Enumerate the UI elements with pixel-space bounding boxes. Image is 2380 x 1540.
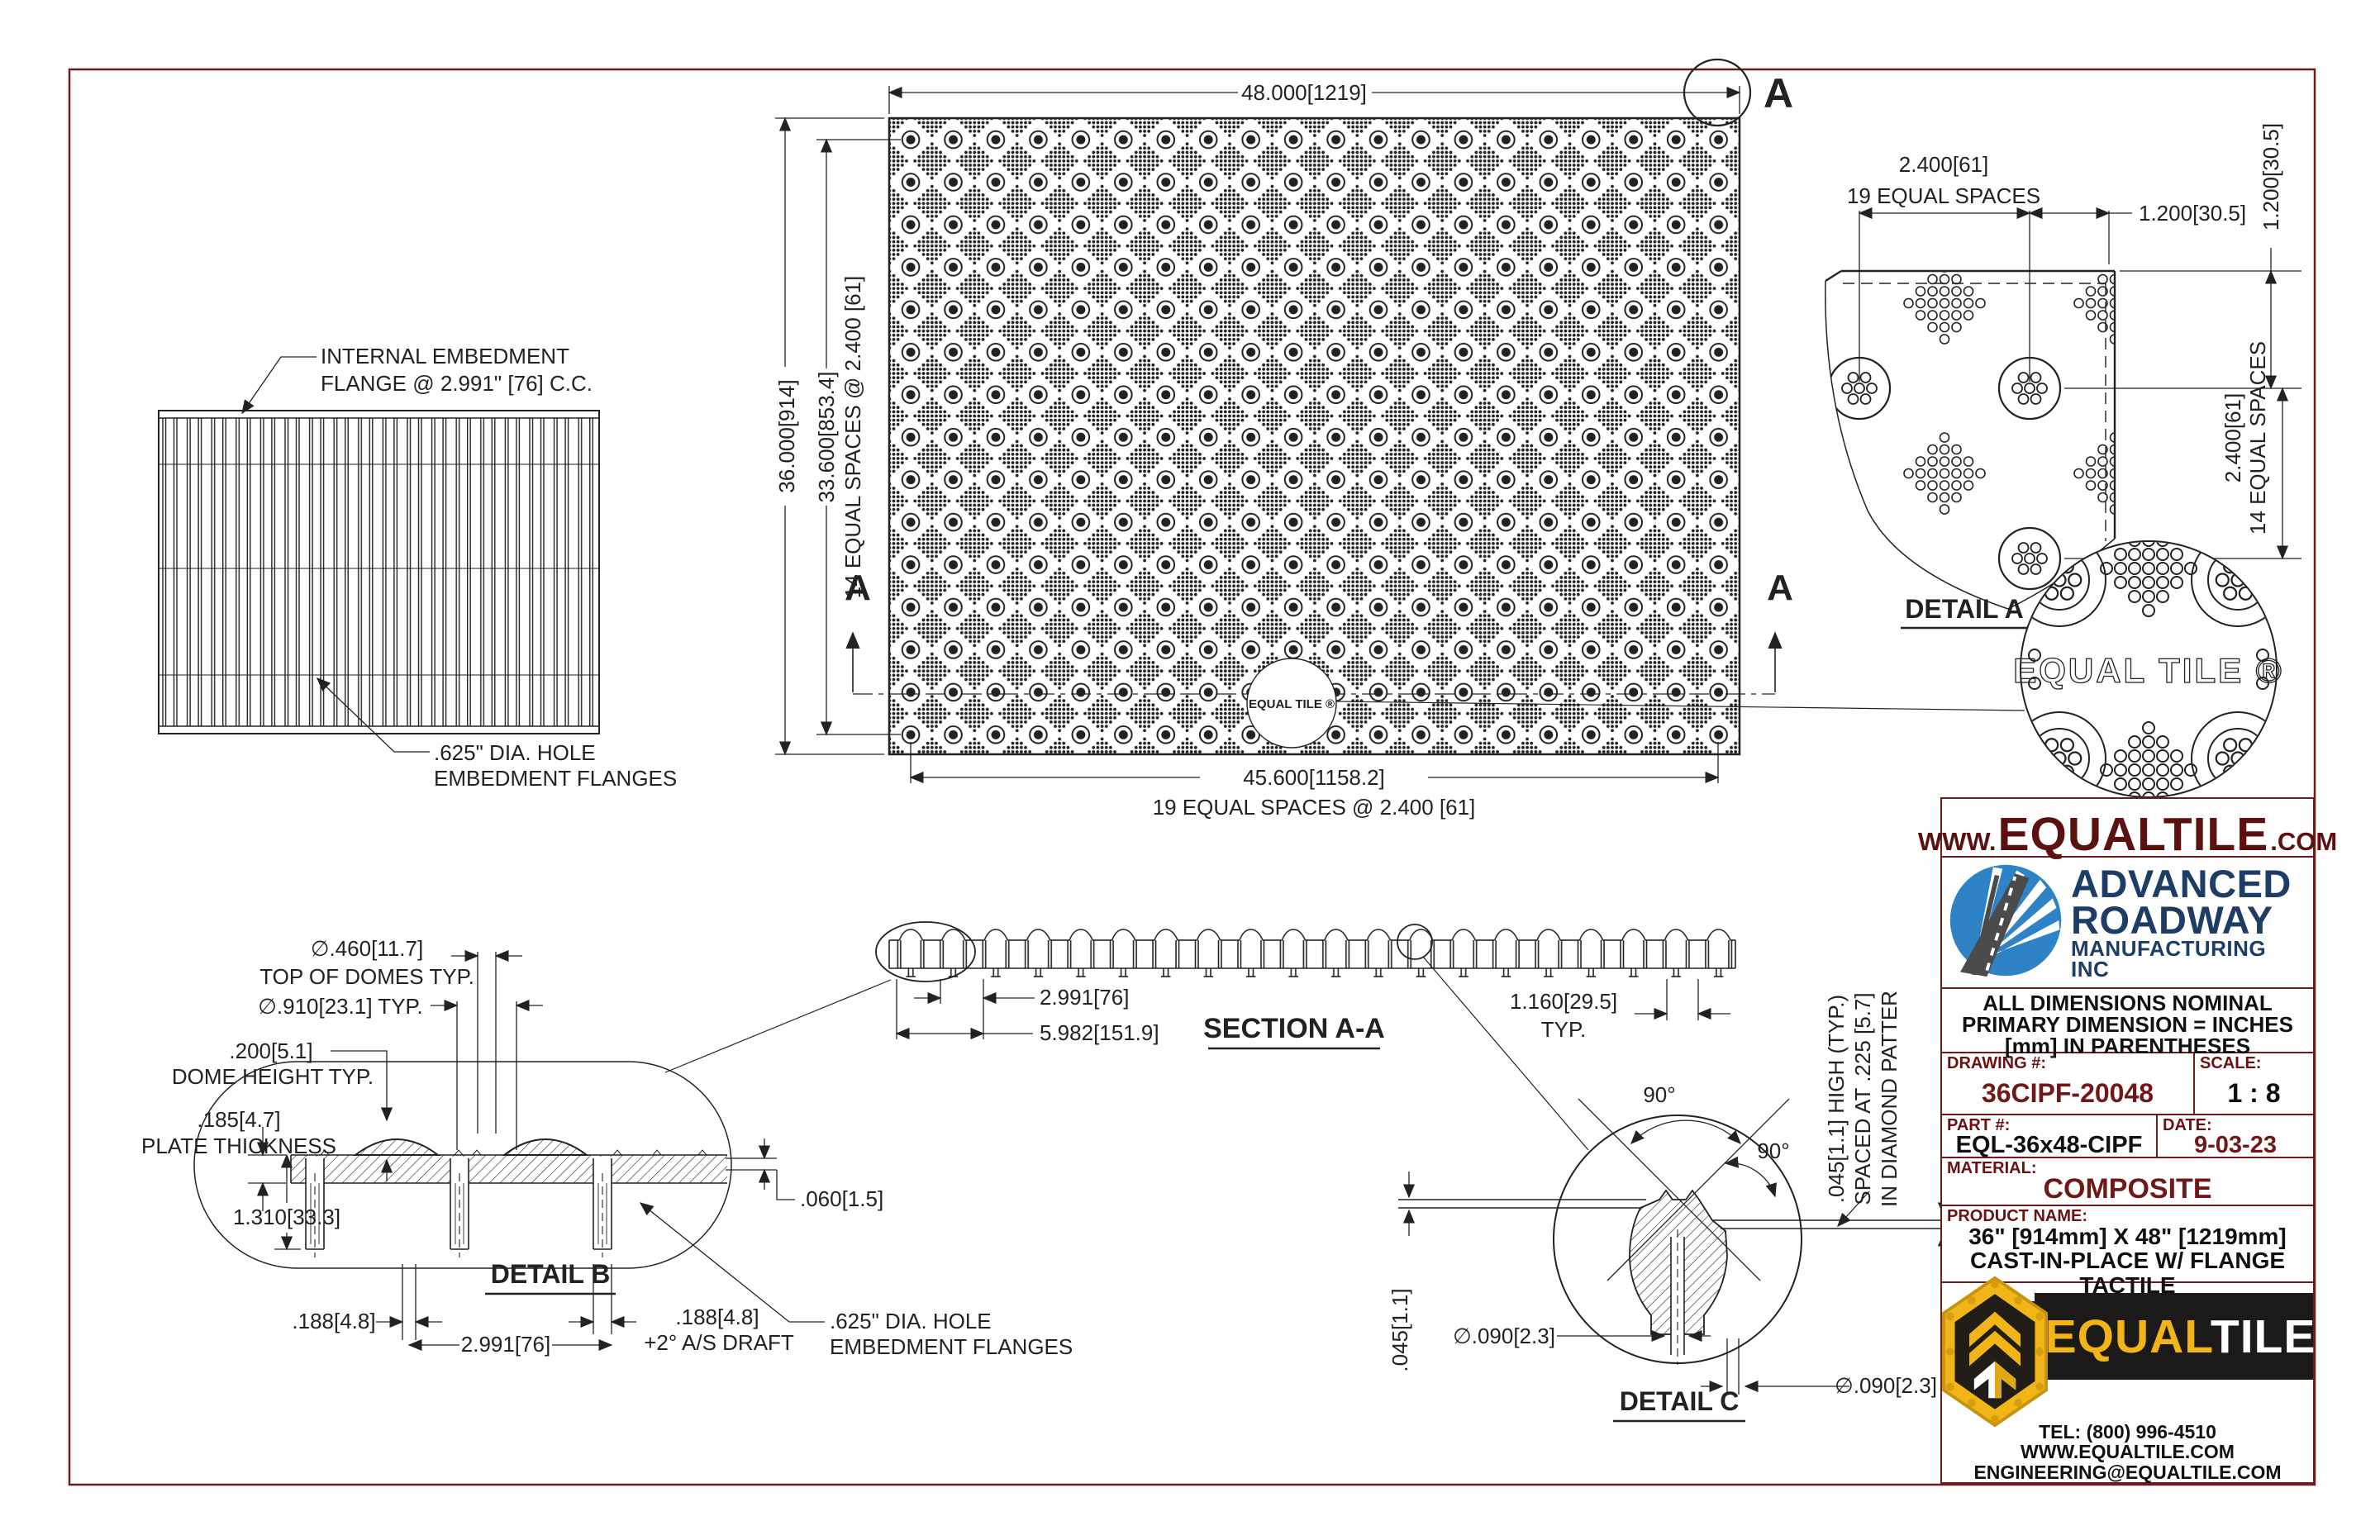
svg-text:2.400[61]: 2.400[61]: [1899, 152, 1988, 177]
material-cell: MATERIAL: COMPOSITE: [1942, 1158, 2313, 1206]
company-line2: ROADWAY: [2071, 902, 2308, 939]
brand-name-left: EQUAL: [2045, 1310, 2211, 1363]
svg-text:TYP.: TYP.: [1541, 1017, 1586, 1042]
svg-text:.045[1.1] HIGH (TYP.): .045[1.1] HIGH (TYP.): [1824, 995, 1849, 1203]
svg-text:IN DIAMOND PATTER: IN DIAMOND PATTER: [1877, 991, 1902, 1207]
side-view-flanges: INTERNAL EMBEDMENT FLANGE @ 2.991" [76] …: [159, 344, 677, 791]
svg-text:∅.460[11.7]: ∅.460[11.7]: [311, 936, 423, 961]
detail-a-title: DETAIL A: [1905, 594, 2023, 624]
svg-text:48.000[1219]: 48.000[1219]: [1241, 80, 1367, 105]
plan-view: A A A EQUAL TILE ® 48.000[1219] 45.600[1…: [774, 59, 2025, 820]
svg-text:5.982[151.9]: 5.982[151.9]: [1040, 1020, 1159, 1045]
svg-text:PLATE THICKNESS: PLATE THICKNESS: [141, 1134, 336, 1158]
brand-name-right: TILE: [2211, 1310, 2316, 1363]
drawing-number-label: DRAWING #:: [1947, 1054, 2046, 1073]
svg-text:1.160[29.5]: 1.160[29.5]: [1510, 989, 1617, 1014]
dim-plan-height-inner: 33.600[853.4] 14 EQUAL SPACES @ 2.400 [6…: [814, 140, 901, 734]
svg-text:SPACED AT .225 [5.7]: SPACED AT .225 [5.7]: [1850, 992, 1875, 1205]
detail-a-balloon-label: A: [1764, 70, 1793, 116]
notes-block: ALL DIMENSIONS NOMINAL PRIMARY DIMENSION…: [1942, 989, 2313, 1053]
company-block: ADVANCED ROADWAY MANUFACTURING INC: [1942, 858, 2313, 989]
date-label: DATE:: [2163, 1116, 2212, 1135]
detail-c-view: 90° 90° .045[1.1] ∅.090[2.3] ∅.090[2.3] …: [1388, 991, 1967, 1421]
svg-text:TOP OF DOMES TYP.: TOP OF DOMES TYP.: [259, 964, 474, 989]
svg-text:∅.090[2.3]: ∅.090[2.3]: [1835, 1373, 1937, 1398]
roadway-logo-icon: [1947, 862, 2064, 983]
note-line1: ALL DIMENSIONS NOMINAL: [1942, 992, 2313, 1014]
svg-text:.200[5.1]: .200[5.1]: [229, 1039, 312, 1063]
company-line1: ADVANCED: [2071, 866, 2308, 902]
svg-text:1.310[33.3]: 1.310[33.3]: [233, 1205, 340, 1229]
svg-text:.185[4.7]: .185[4.7]: [197, 1107, 280, 1132]
dim-plan-width: 48.000[1219]: [889, 80, 1740, 114]
title-url: WWW.EQUALTILE.COM: [1942, 799, 2313, 858]
svg-text:90°: 90°: [1757, 1138, 1789, 1163]
part-number-cell: PART #: EQL-36x48-CIPF: [1942, 1115, 2156, 1157]
side-hole-line1: .625" DIA. HOLE: [434, 740, 596, 765]
svg-text:90°: 90°: [1643, 1082, 1675, 1107]
svg-text:1.200[30.5]: 1.200[30.5]: [2139, 201, 2246, 226]
product-line1: 36" [914mm] X 48" [1219mm]: [1942, 1224, 2313, 1248]
svg-text:45.600[1158.2]: 45.600[1158.2]: [1243, 765, 1385, 790]
svg-text:33.600[853.4]: 33.600[853.4]: [814, 371, 839, 502]
material-label: MATERIAL:: [1947, 1159, 2037, 1178]
side-note-line1: INTERNAL EMBEDMENT: [321, 344, 569, 368]
url-www: WWW.: [1918, 827, 1997, 857]
equaltile-hex-logo-icon: [1937, 1275, 2053, 1433]
note-line2: PRIMARY DIMENSION = INCHES: [1942, 1014, 2313, 1035]
svg-text:.625" DIA. HOLE: .625" DIA. HOLE: [830, 1309, 992, 1333]
dim-detail-a: 2.400[61] 19 EQUAL SPACES 1.200[30.5] 1.…: [1847, 123, 2301, 558]
logo-detail-view: EQUAL TILE ®: [2013, 520, 2284, 818]
brand-web: WWW.EQUALTILE.COM: [1942, 1442, 2313, 1462]
scale-cell: SCALE: 1 : 8: [2193, 1053, 2313, 1114]
section-marker-right: A: [1767, 568, 1793, 608]
section-aa-title: SECTION A-A: [1203, 1013, 1385, 1044]
company-line3: MANUFACTURING INC: [2071, 939, 2308, 979]
product-name-cell: PRODUCT NAME: 36" [914mm] X 48" [1219mm]…: [1942, 1206, 2313, 1283]
svg-text:19 EQUAL SPACES @ 2.400 [61]: 19 EQUAL SPACES @ 2.400 [61]: [1153, 795, 1476, 820]
scale-label: SCALE:: [2200, 1054, 2261, 1073]
svg-text:∅.910[23.1] TYP.: ∅.910[23.1] TYP.: [258, 994, 423, 1019]
brand-block: EQUALTILE TEL: (800) 996-4510 WWW.EQUALT…: [1942, 1283, 2313, 1484]
svg-text:EMBEDMENT FLANGES: EMBEDMENT FLANGES: [830, 1334, 1073, 1359]
dim-detail-b: ∅.460[11.7] TOP OF DOMES TYP. ∅.910[23.1…: [141, 936, 1073, 1359]
side-hole-line2: EMBEDMENT FLANGES: [434, 766, 677, 791]
svg-text:.060[1.5]: .060[1.5]: [800, 1186, 883, 1211]
title-block: WWW.EQUALTILE.COM ADVANCED: [1940, 797, 2315, 1485]
dim-plan-vspaces: 14 EQUAL SPACES @ 2.400 [61]: [840, 276, 865, 599]
section-aa-view: 2.991[76] 5.982[151.9] 1.160[29.5] TYP. …: [665, 922, 1735, 1150]
detail-c-title: DETAIL C: [1620, 1386, 1740, 1416]
svg-text:.188[4.8]: .188[4.8]: [675, 1305, 759, 1329]
side-note-line2: FLANGE @ 2.991" [76] C.C.: [321, 371, 593, 396]
svg-text:1.200[30.5]: 1.200[30.5]: [2259, 123, 2283, 231]
brand-email: ENGINEERING@EQUALTILE.COM: [1942, 1462, 2313, 1482]
drawing-sheet: INTERNAL EMBEDMENT FLANGE @ 2.991" [76] …: [0, 0, 2380, 1540]
svg-text:.188[4.8]: .188[4.8]: [292, 1309, 375, 1333]
svg-text:36.000[914]: 36.000[914]: [774, 379, 799, 492]
detail-b-view: ∅.460[11.7] TOP OF DOMES TYP. ∅.910[23.1…: [141, 936, 1073, 1359]
svg-text:+2° A/S DRAFT: +2° A/S DRAFT: [644, 1330, 794, 1355]
svg-text:19 EQUAL SPACES: 19 EQUAL SPACES: [1847, 183, 2040, 208]
date-cell: DATE: 9-03-23: [2156, 1115, 2313, 1157]
url-name: EQUALTILE: [1998, 807, 2269, 862]
svg-text:.045[1.1]: .045[1.1]: [1388, 1288, 1412, 1371]
svg-text:DOME HEIGHT TYP.: DOME HEIGHT TYP.: [172, 1064, 374, 1089]
svg-text:2.400[61]: 2.400[61]: [2221, 393, 2245, 482]
detail-b-title: DETAIL B: [491, 1259, 611, 1289]
url-com: .COM: [2270, 827, 2337, 857]
svg-text:2.991[76]: 2.991[76]: [1040, 985, 1129, 1010]
product-name-label: PRODUCT NAME:: [1947, 1207, 2087, 1226]
part-number-label: PART #:: [1947, 1116, 2010, 1135]
svg-text:14 EQUAL SPACES: 14 EQUAL SPACES: [2245, 341, 2270, 535]
svg-text:2.991[76]: 2.991[76]: [461, 1332, 550, 1357]
logo-stamp-text: EQUAL TILE ®: [1249, 697, 1335, 711]
svg-text:∅.090[2.3]: ∅.090[2.3]: [1453, 1324, 1555, 1348]
logo-detail-text: EQUAL TILE ®: [2013, 651, 2284, 690]
drawing-number-cell: DRAWING #: 36CIPF-20048: [1942, 1053, 2193, 1114]
brand-banner: EQUALTILE: [2035, 1293, 2313, 1380]
